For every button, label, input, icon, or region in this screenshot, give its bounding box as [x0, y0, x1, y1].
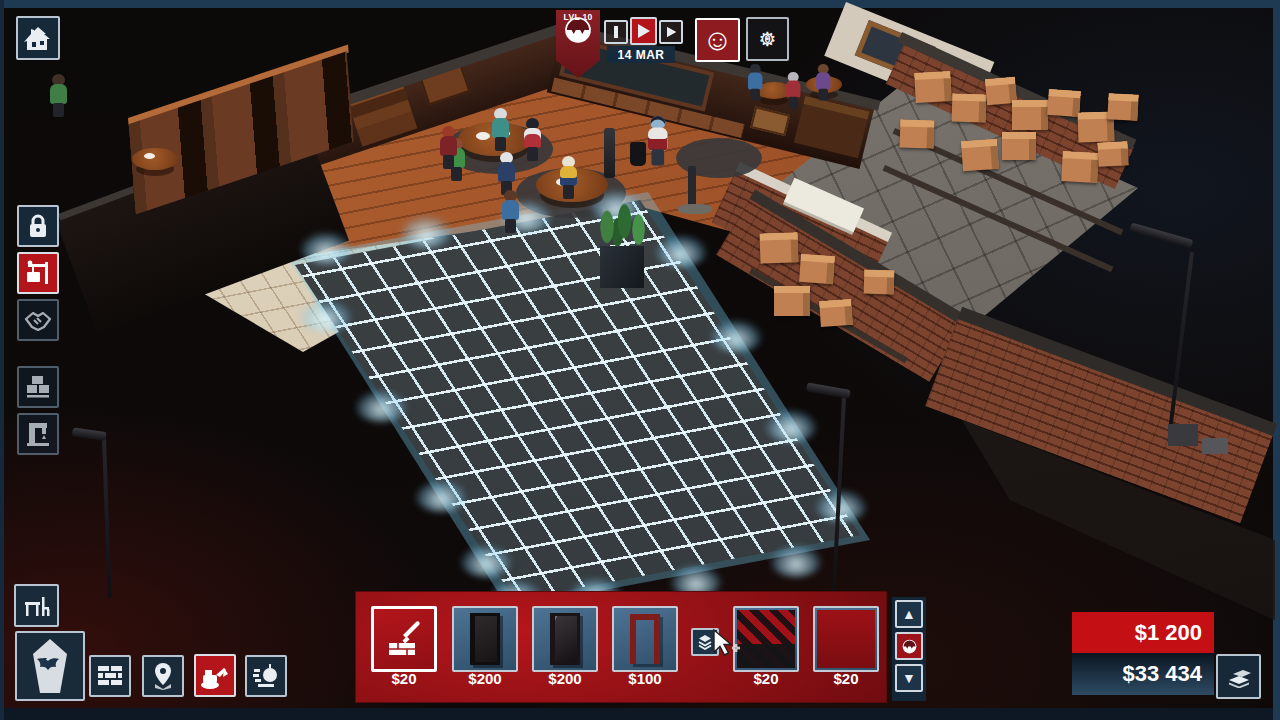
- pallet-boxes-icon: [25, 374, 51, 400]
- pause-button[interactable]: [604, 20, 628, 44]
- toolbar-item-excavate[interactable]: [194, 654, 236, 697]
- cardboard-box: [961, 139, 999, 171]
- cardboard-box: [1047, 89, 1081, 117]
- date-display: 14 MAR: [607, 46, 675, 63]
- toolbar-item-furniture[interactable]: [14, 584, 59, 627]
- cardboard-box: [1002, 132, 1036, 160]
- flame: [765, 410, 817, 442]
- mouse-cursor: [710, 628, 744, 662]
- trash-bin: [630, 142, 646, 166]
- exterior-wall-cap: [958, 307, 1277, 436]
- fast-forward-button[interactable]: [659, 20, 683, 44]
- item-price: $20: [813, 670, 879, 690]
- category-button[interactable]: [895, 632, 923, 660]
- street-lamp-head: [1129, 223, 1193, 249]
- window-frame-top: [0, 0, 1280, 8]
- cardboard-box: [799, 254, 835, 284]
- padlock-icon: [26, 213, 50, 239]
- sidebar-item-property[interactable]: [16, 16, 60, 60]
- cinder-block: [1202, 438, 1228, 454]
- palette-item-red-flooring[interactable]: [813, 606, 879, 672]
- scroll-up-button[interactable]: ▲: [895, 600, 923, 628]
- cardboard-box: [900, 119, 935, 148]
- sidebar-item-machines[interactable]: [17, 413, 59, 455]
- cardboard-box: [914, 71, 952, 103]
- flame: [355, 390, 407, 422]
- planter: [600, 246, 644, 288]
- street-lamp-head: [72, 427, 107, 441]
- cardboard-box: [864, 269, 895, 294]
- cardboard-box: [774, 286, 810, 316]
- plate: [476, 132, 490, 140]
- flame: [300, 300, 352, 332]
- dark-door-image: [470, 613, 500, 665]
- flame: [400, 216, 452, 248]
- sidebar-item-security[interactable]: [17, 205, 59, 247]
- cardboard-box: [819, 299, 853, 327]
- plant-leaves: [586, 196, 656, 252]
- drill-press-icon: [25, 421, 51, 447]
- build-palette-panel: $20 $200 $200 $100 $20 $20: [356, 592, 886, 702]
- flame: [415, 480, 467, 512]
- plate: [144, 153, 155, 159]
- smiley-icon: ☺: [702, 23, 733, 57]
- item-price: $20: [733, 670, 799, 690]
- game-viewport: LVL 10 14 MAR ☺ ⚙ 0: [0, 0, 1280, 720]
- cardboard-box: [952, 93, 987, 122]
- palette-item-door-frame[interactable]: [612, 606, 678, 672]
- chevron-down-icon: ▼: [902, 670, 916, 686]
- mood-button[interactable]: ☺: [695, 18, 740, 62]
- flame: [770, 545, 822, 577]
- cardboard-box: [1061, 151, 1099, 183]
- side-table: [132, 148, 178, 170]
- palette-item-glass-door[interactable]: [532, 606, 598, 672]
- beer-tower: [688, 166, 696, 208]
- sidebar-item-build[interactable]: [17, 252, 59, 294]
- sidebar-item-deals[interactable]: [17, 299, 59, 341]
- brick-wall-icon: [97, 665, 123, 687]
- toolbar-item-coffin[interactable]: [15, 631, 85, 701]
- vampire-face-icon: [902, 639, 917, 654]
- toolbar-item-walls[interactable]: [89, 655, 131, 697]
- flame: [815, 490, 867, 522]
- maintenance-button[interactable]: ⚙ 0: [746, 17, 789, 61]
- heater-pillar: [604, 128, 615, 178]
- glass-door-image: [550, 613, 580, 665]
- excavator-icon: [200, 663, 230, 689]
- play-button[interactable]: [630, 17, 657, 45]
- trowel-bricks-icon: [383, 618, 425, 660]
- item-price: $20: [371, 670, 437, 690]
- flame: [655, 235, 707, 267]
- flame: [460, 545, 512, 577]
- lamp-base: [1168, 424, 1198, 446]
- toolbar-item-demolish[interactable]: [245, 655, 287, 697]
- sidebar-item-warehouse[interactable]: [17, 366, 59, 408]
- flame: [300, 232, 352, 264]
- window-frame-left: [0, 0, 4, 720]
- red-flooring-image: [817, 610, 875, 668]
- coffin-bat-icon: [27, 638, 73, 694]
- window-frame-bottom: [0, 708, 1280, 720]
- flame: [710, 320, 762, 352]
- palette-item-floor-tool[interactable]: [371, 606, 437, 672]
- cardboard-box: [759, 232, 798, 263]
- palette-scroll-column: ▲ ▼: [892, 597, 926, 701]
- beer-tower-base: [678, 204, 712, 214]
- item-price: $200: [452, 670, 518, 690]
- door-frame-image: [630, 614, 660, 664]
- money-stack-icon: [1225, 666, 1253, 688]
- wrecking-ball-icon: [252, 663, 280, 689]
- handshake-icon: [24, 309, 52, 331]
- chevron-up-icon: ▲: [902, 606, 916, 622]
- cardboard-box: [1097, 141, 1128, 167]
- item-price: $100: [612, 670, 678, 690]
- toolbar-item-locations[interactable]: [142, 655, 184, 697]
- checkered-flooring-image: [737, 610, 795, 668]
- item-price: $200: [532, 670, 598, 690]
- street-lamp-head: [806, 382, 851, 399]
- expense-display: $1 200: [1072, 612, 1214, 653]
- radio-cabinet: [750, 106, 790, 136]
- level-label: LVL 10: [564, 12, 593, 22]
- palette-item-dark-door[interactable]: [452, 606, 518, 672]
- scroll-down-button[interactable]: ▼: [895, 664, 923, 692]
- maintenance-count: 0: [764, 33, 770, 45]
- finances-button[interactable]: [1216, 654, 1261, 699]
- map-pin-icon: [152, 662, 174, 690]
- balance-display: $33 434: [1072, 653, 1214, 695]
- table-chair-icon: [23, 594, 51, 618]
- crane-sign-icon: [25, 260, 51, 286]
- street-lamp: [102, 438, 112, 598]
- haunted-house-icon: [23, 25, 53, 51]
- cardboard-box: [1107, 93, 1138, 121]
- cardboard-box: [1012, 100, 1048, 130]
